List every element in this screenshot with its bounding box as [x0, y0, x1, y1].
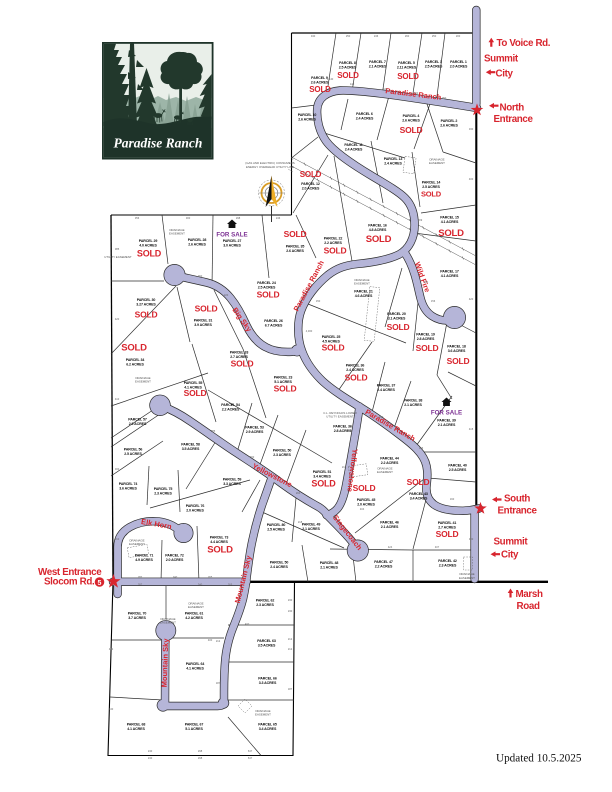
svg-text:PARCEL 50: PARCEL 50: [270, 561, 289, 565]
svg-text:PARCEL 37: PARCEL 37: [377, 384, 396, 388]
svg-text:246: 246: [374, 34, 379, 38]
svg-text:2.1 ACRES: 2.1 ACRES: [404, 403, 422, 407]
svg-text:282: 282: [424, 280, 429, 284]
svg-text:PARCEL 62: PARCEL 62: [256, 599, 275, 603]
svg-text:SOLD: SOLD: [195, 304, 218, 314]
svg-text:400: 400: [245, 622, 250, 626]
svg-text:FOR SALE: FOR SALE: [216, 232, 247, 239]
svg-text:3.0 ACRES: 3.0 ACRES: [223, 243, 241, 247]
svg-text:PARCEL 57: PARCEL 57: [128, 418, 147, 422]
svg-text:FOR SALE: FOR SALE: [431, 410, 462, 417]
svg-text:2.1 ACRES: 2.1 ACRES: [369, 64, 387, 68]
svg-text:SOLD: SOLD: [311, 479, 336, 489]
svg-text:UTILITY EASEMENT: UTILITY EASEMENT: [326, 415, 354, 419]
svg-text:PARCEL 35: PARCEL 35: [286, 245, 305, 249]
svg-text:SOLD: SOLD: [400, 125, 423, 135]
svg-text:2.5 ACRES: 2.5 ACRES: [124, 452, 142, 456]
svg-text:4.2 ACRES: 4.2 ACRES: [185, 616, 203, 620]
svg-text:3.1 ACRES: 3.1 ACRES: [388, 316, 406, 320]
svg-text:PARCEL 41: PARCEL 41: [438, 521, 457, 525]
svg-text:Mountain Sky: Mountain Sky: [160, 638, 171, 688]
svg-text:2.5 ACRES: 2.5 ACRES: [339, 65, 357, 69]
svg-text:SOLD: SOLD: [184, 388, 207, 398]
svg-text:2.4 ACRES: 2.4 ACRES: [377, 388, 395, 392]
svg-text:265: 265: [228, 583, 233, 587]
svg-text:4.4 ACRES: 4.4 ACRES: [210, 540, 228, 544]
svg-text:2.9 ACRES: 2.9 ACRES: [246, 430, 264, 434]
svg-text:PARCEL 21: PARCEL 21: [354, 290, 373, 294]
svg-text:PARCEL 67: PARCEL 67: [185, 723, 204, 727]
svg-text:340: 340: [198, 583, 203, 587]
svg-text:3.27 ACRES: 3.27 ACRES: [136, 302, 156, 306]
svg-text:SOLD: SOLD: [137, 249, 162, 259]
svg-text:4.9 ACRES: 4.9 ACRES: [135, 558, 153, 562]
svg-text:4.0 ACRES: 4.0 ACRES: [139, 243, 157, 247]
svg-text:2.6 ACRES: 2.6 ACRES: [311, 80, 329, 84]
svg-text:Summit: Summit: [484, 54, 519, 65]
svg-text:SOLD: SOLD: [121, 343, 147, 354]
svg-text:SOLD: SOLD: [207, 545, 233, 556]
svg-text:356: 356: [135, 216, 140, 220]
svg-text:EASEMENT: EASEMENT: [354, 282, 370, 286]
svg-text:PARCEL 12: PARCEL 12: [301, 182, 320, 186]
svg-text:PARCEL 8: PARCEL 8: [339, 61, 356, 65]
svg-text:SOLD: SOLD: [135, 310, 158, 320]
svg-text:PARCEL 76: PARCEL 76: [186, 504, 205, 508]
svg-text:400: 400: [469, 177, 474, 181]
svg-text:PARCEL 20: PARCEL 20: [387, 312, 406, 316]
svg-text:PARCEL 6: PARCEL 6: [356, 112, 373, 116]
svg-text:200: 200: [456, 34, 461, 38]
svg-text:EASEMENT: EASEMENT: [169, 232, 185, 236]
svg-text:2.1 ACRES: 2.1 ACRES: [381, 525, 399, 529]
svg-text:Paradise Ranch: Paradise Ranch: [114, 136, 203, 151]
svg-text:420: 420: [115, 317, 120, 321]
svg-text:SOLD: SOLD: [436, 529, 459, 539]
svg-text:Entrance: Entrance: [498, 506, 538, 517]
svg-text:SOLD: SOLD: [438, 228, 464, 239]
svg-text:2.6 ACRES: 2.6 ACRES: [286, 249, 304, 253]
svg-text:EASEMENT: EASEMENT: [377, 470, 393, 474]
svg-text:2.1 ACRES: 2.1 ACRES: [438, 423, 456, 427]
svg-text:PARCEL 18: PARCEL 18: [447, 345, 466, 349]
svg-text:PARCEL 50: PARCEL 50: [273, 449, 292, 453]
svg-text:2.3 ACRES: 2.3 ACRES: [256, 603, 274, 607]
svg-text:SOLD: SOLD: [309, 85, 331, 94]
svg-text:PARCEL 54: PARCEL 54: [221, 403, 240, 407]
svg-text:310: 310: [115, 537, 120, 541]
svg-text:SOLD: SOLD: [337, 71, 359, 80]
svg-text:360: 360: [198, 274, 203, 278]
svg-text:PARCEL 9: PARCEL 9: [311, 76, 328, 80]
svg-text:PARCEL 61: PARCEL 61: [185, 612, 204, 616]
svg-text:298: 298: [198, 749, 203, 753]
svg-text:260: 260: [405, 34, 410, 38]
svg-text:2.0 ACRES: 2.0 ACRES: [302, 186, 320, 190]
svg-text:5: 5: [98, 580, 102, 587]
svg-text:3.4 ACRES: 3.4 ACRES: [410, 496, 428, 500]
svg-text:212: 212: [216, 639, 221, 643]
svg-text:PARCEL 27: PARCEL 27: [223, 239, 242, 243]
svg-text:385: 385: [211, 429, 216, 433]
svg-text:246: 246: [276, 216, 281, 220]
svg-text:4,300: 4,300: [306, 329, 313, 333]
svg-text:PARCEL 14: PARCEL 14: [422, 181, 441, 185]
svg-text:PARCEL 11: PARCEL 11: [344, 143, 362, 147]
svg-text:148: 148: [350, 82, 355, 86]
svg-text:PARCEL 7: PARCEL 7: [369, 60, 386, 64]
svg-text:PARCEL 13: PARCEL 13: [384, 157, 403, 161]
svg-text:212: 212: [288, 637, 293, 641]
svg-text:SOLD: SOLD: [397, 72, 419, 81]
svg-text:PARCEL 33: PARCEL 33: [230, 351, 249, 355]
svg-text:265: 265: [208, 575, 213, 579]
svg-text:2.4 ACRES: 2.4 ACRES: [346, 368, 364, 372]
svg-text:412: 412: [109, 647, 114, 651]
svg-text:300: 300: [115, 467, 120, 471]
svg-text:PARCEL 71: PARCEL 71: [135, 554, 154, 558]
svg-text:South: South: [504, 494, 530, 505]
svg-text:3.5 ACRES: 3.5 ACRES: [182, 447, 200, 451]
svg-text:PARCEL 70: PARCEL 70: [128, 612, 147, 616]
svg-text:PARCEL 24: PARCEL 24: [257, 281, 276, 285]
svg-text:250: 250: [346, 34, 351, 38]
svg-text:2.0 ACRES: 2.0 ACRES: [166, 558, 184, 562]
svg-text:PARCEL 38: PARCEL 38: [404, 399, 423, 403]
svg-text:2.3 ACRES: 2.3 ACRES: [273, 453, 291, 457]
svg-text:5.1 ACRES: 5.1 ACRES: [185, 727, 203, 731]
svg-text:4.1 ACRES: 4.1 ACRES: [186, 666, 204, 670]
svg-text:2.3 ACRES: 2.3 ACRES: [439, 563, 457, 567]
svg-text:PARCEL 58: PARCEL 58: [181, 443, 200, 447]
svg-text:SOLD: SOLD: [284, 229, 307, 239]
svg-text:187: 187: [288, 687, 293, 691]
svg-text:260: 260: [414, 91, 419, 95]
svg-text:6.2 ACRES: 6.2 ACRES: [126, 362, 144, 366]
svg-text:PARCEL 30: PARCEL 30: [137, 298, 156, 302]
svg-text:PARCEL 74: PARCEL 74: [119, 482, 138, 486]
svg-text:218: 218: [298, 520, 303, 524]
svg-text:150: 150: [316, 299, 321, 303]
svg-text:EASEMENT: EASEMENT: [160, 621, 176, 625]
svg-text:PARCEL 65: PARCEL 65: [258, 723, 277, 727]
svg-text:230: 230: [288, 598, 293, 602]
svg-text:240: 240: [148, 756, 153, 760]
svg-text:PARCEL 36: PARCEL 36: [333, 425, 352, 429]
svg-text:250: 250: [442, 96, 447, 100]
svg-text:3.6 ACRES: 3.6 ACRES: [448, 349, 466, 353]
svg-text:220: 220: [224, 293, 229, 297]
svg-text:2.11 ACRES: 2.11 ACRES: [397, 65, 417, 69]
svg-text:SOLD: SOLD: [257, 290, 280, 300]
svg-text:PARCEL 19: PARCEL 19: [416, 333, 435, 337]
svg-text:North: North: [500, 103, 525, 114]
svg-text:SOLD: SOLD: [366, 234, 392, 245]
svg-text:4.6 ACRES: 4.6 ACRES: [355, 294, 373, 298]
svg-text:218: 218: [342, 465, 347, 469]
svg-text:EASEMENT: EASEMENT: [188, 605, 204, 609]
svg-text:PARCEL 55: PARCEL 55: [184, 381, 203, 385]
svg-text:SOLD: SOLD: [387, 322, 410, 332]
svg-text:3.3 ACRES: 3.3 ACRES: [259, 681, 277, 685]
svg-text:400: 400: [208, 638, 213, 642]
svg-text:PARCEL 40: PARCEL 40: [448, 464, 467, 468]
svg-text:4.1 ACRES: 4.1 ACRES: [127, 727, 145, 731]
svg-text:PARCEL 45: PARCEL 45: [357, 498, 376, 502]
svg-text:2.2 ACRES: 2.2 ACRES: [381, 461, 399, 465]
svg-text:SOLD: SOLD: [300, 170, 322, 179]
svg-text:PARCEL 3: PARCEL 3: [425, 60, 442, 64]
svg-text:240: 240: [379, 415, 384, 419]
svg-text:300: 300: [186, 216, 191, 220]
svg-text:PARCEL 25: PARCEL 25: [322, 335, 341, 339]
svg-text:SOLD: SOLD: [447, 356, 470, 366]
svg-text:298: 298: [198, 756, 203, 760]
svg-text:300: 300: [250, 455, 255, 459]
svg-text:PARCEL 36: PARCEL 36: [346, 364, 365, 368]
svg-text:410: 410: [115, 397, 120, 401]
svg-text:2.5 ACRES: 2.5 ACRES: [425, 64, 443, 68]
svg-text:385: 385: [115, 247, 120, 251]
svg-text:EASEMENT: EASEMENT: [135, 380, 151, 384]
svg-text:3.9 ACRES: 3.9 ACRES: [194, 323, 212, 327]
svg-text:PARCEL 53: PARCEL 53: [245, 426, 264, 430]
svg-text:2.5 ACRES: 2.5 ACRES: [422, 185, 440, 189]
svg-text:287: 287: [138, 575, 143, 579]
svg-text:City: City: [501, 550, 519, 561]
svg-text:2.4 ACRES: 2.4 ACRES: [345, 147, 363, 151]
svg-text:6.7 ACRES: 6.7 ACRES: [265, 323, 283, 327]
svg-text:2.1 ACRES: 2.1 ACRES: [320, 565, 338, 569]
svg-text:240: 240: [148, 749, 153, 753]
svg-text:2.2 ACRES: 2.2 ACRES: [222, 407, 240, 411]
svg-text:430: 430: [109, 707, 114, 711]
svg-text:2.6 ACRES: 2.6 ACRES: [440, 123, 458, 127]
svg-text:250: 250: [432, 34, 437, 38]
svg-text:2.0 ACRES: 2.0 ACRES: [186, 508, 204, 512]
svg-text:EASEMENT: EASEMENT: [129, 542, 145, 546]
svg-text:178: 178: [348, 429, 353, 433]
svg-text:PARCEL 26: PARCEL 26: [264, 319, 283, 323]
svg-text:4.1 ACRES: 4.1 ACRES: [441, 220, 459, 224]
svg-text:PARCEL 34: PARCEL 34: [126, 358, 145, 362]
svg-text:PARCEL 31: PARCEL 31: [194, 319, 213, 323]
svg-text:PARCEL 75: PARCEL 75: [154, 487, 173, 491]
svg-text:PARCEL 47: PARCEL 47: [374, 560, 393, 564]
svg-text:SOLD: SOLD: [324, 246, 347, 256]
svg-text:UTILITY EASEMENT: UTILITY EASEMENT: [104, 255, 132, 259]
svg-text:EASEMENT: EASEMENT: [459, 576, 475, 580]
svg-text:2.6 ACRES: 2.6 ACRES: [298, 117, 316, 121]
svg-text:PARCEL 39: PARCEL 39: [437, 419, 456, 423]
svg-text:404: 404: [360, 507, 365, 511]
svg-text:4.1 ACRES: 4.1 ACRES: [441, 274, 459, 278]
svg-text:230: 230: [288, 609, 293, 613]
svg-text:PARCEL 72: PARCEL 72: [165, 554, 184, 558]
svg-text:PARCEL 23: PARCEL 23: [274, 376, 293, 380]
svg-text:PARCEL 5: PARCEL 5: [398, 61, 415, 65]
svg-text:2.2 ACRES: 2.2 ACRES: [324, 241, 342, 245]
svg-text:Road: Road: [517, 601, 540, 612]
svg-text:PARCEL 49: PARCEL 49: [302, 523, 321, 527]
svg-text:PARCEL 4: PARCEL 4: [403, 114, 420, 118]
svg-text:PARCEL 1: PARCEL 1: [450, 60, 467, 64]
svg-text:2.4 ACRES: 2.4 ACRES: [270, 565, 288, 569]
svg-text:PARCEL 29: PARCEL 29: [139, 239, 158, 243]
svg-text:PARCEL 73: PARCEL 73: [210, 536, 229, 540]
svg-text:PARCEL 68: PARCEL 68: [127, 723, 146, 727]
svg-text:PARCEL 22: PARCEL 22: [324, 237, 343, 241]
svg-text:260: 260: [296, 491, 301, 495]
svg-text:PARCEL 28: PARCEL 28: [188, 238, 207, 242]
svg-text:PARCEL 46: PARCEL 46: [380, 521, 399, 525]
svg-text:2.0 ACRES: 2.0 ACRES: [357, 502, 375, 506]
svg-text:240: 240: [383, 87, 388, 91]
svg-text:Updated 10.5.2025: Updated 10.5.2025: [496, 753, 582, 765]
svg-text:340: 340: [173, 575, 178, 579]
svg-text:209: 209: [418, 218, 423, 222]
svg-text:SOLD: SOLD: [345, 373, 368, 383]
svg-text:330: 330: [469, 127, 474, 131]
svg-text:212: 212: [288, 647, 293, 651]
svg-text:SOLD: SOLD: [416, 343, 439, 353]
svg-text:407: 407: [435, 545, 440, 549]
svg-text:2.4 ACRES: 2.4 ACRES: [356, 116, 374, 120]
svg-text:PARCEL 59: PARCEL 59: [223, 478, 242, 482]
svg-text:Slocom Rd.: Slocom Rd.: [44, 577, 95, 588]
svg-text:PARCEL 10: PARCEL 10: [298, 113, 317, 117]
svg-text:287: 287: [138, 583, 143, 587]
svg-text:3.6 ACRES: 3.6 ACRES: [119, 486, 137, 490]
svg-text:2.5 ACRES: 2.5 ACRES: [449, 468, 467, 472]
svg-text:415: 415: [469, 427, 474, 431]
svg-text:Summit: Summit: [494, 537, 529, 548]
svg-text:156: 156: [419, 446, 424, 450]
svg-text:SOLD: SOLD: [274, 384, 297, 394]
svg-text:PARCEL 64: PARCEL 64: [186, 662, 205, 666]
svg-text:To Voice Rd.: To Voice Rd.: [497, 38, 551, 49]
svg-text:Entrance: Entrance: [494, 114, 534, 125]
svg-text:647: 647: [248, 756, 253, 760]
svg-text:PARCEL 44: PARCEL 44: [380, 457, 399, 461]
svg-text:PARCEL 56: PARCEL 56: [124, 448, 143, 452]
svg-text:1,140: 1,140: [327, 77, 334, 81]
svg-text:PARCEL 63: PARCEL 63: [257, 639, 276, 643]
svg-text:PARCEL 51: PARCEL 51: [313, 470, 332, 474]
svg-text:2.8 ACRES: 2.8 ACRES: [417, 337, 435, 341]
svg-text:420: 420: [469, 297, 474, 301]
svg-text:3.4 ACRES: 3.4 ACRES: [259, 727, 277, 731]
svg-text:160: 160: [450, 497, 455, 501]
svg-text:PARCEL 16: PARCEL 16: [368, 224, 387, 228]
svg-text:2.4 ACRES: 2.4 ACRES: [384, 161, 402, 165]
svg-text:PARCEL 80: PARCEL 80: [267, 523, 286, 527]
svg-text:340: 340: [311, 34, 316, 38]
svg-text:4.8 ACRES: 4.8 ACRES: [369, 228, 387, 232]
svg-text:EASEMENT: EASEMENT: [255, 713, 271, 717]
svg-text:300: 300: [469, 537, 474, 541]
svg-text:3.7 ACRES: 3.7 ACRES: [128, 616, 146, 620]
svg-text:Marsh: Marsh: [516, 589, 543, 600]
svg-text:SOLD: SOLD: [322, 343, 345, 353]
svg-text:2.9 ACRES: 2.9 ACRES: [129, 422, 147, 426]
svg-text:2.3 ACRES: 2.3 ACRES: [154, 491, 172, 495]
svg-text:187: 187: [216, 681, 221, 685]
svg-text:PARCEL 66: PARCEL 66: [258, 677, 277, 681]
svg-text:2.6 ACRES: 2.6 ACRES: [188, 242, 206, 246]
svg-text:ENERGY OVERHEAD UTILITY LINE: ENERGY OVERHEAD UTILITY LINE: [246, 165, 294, 169]
svg-text:3.3 ACRES: 3.3 ACRES: [223, 482, 241, 486]
svg-text:City: City: [496, 69, 514, 80]
svg-text:2.6 ACRES: 2.6 ACRES: [402, 118, 420, 122]
svg-text:647: 647: [248, 749, 253, 753]
svg-text:SOLD: SOLD: [231, 359, 254, 369]
svg-text:2.0 ACRES: 2.0 ACRES: [450, 64, 468, 68]
svg-text:PARCEL 43: PARCEL 43: [409, 492, 428, 496]
svg-text:2.2 ACRES: 2.2 ACRES: [375, 564, 393, 568]
svg-text:156: 156: [431, 299, 436, 303]
svg-text:2.1 ACRES: 2.1 ACRES: [302, 527, 320, 531]
svg-text:PARCEL 15: PARCEL 15: [440, 216, 459, 220]
svg-text:424: 424: [388, 545, 393, 549]
svg-text:PARCEL 2: PARCEL 2: [441, 119, 458, 123]
svg-text:298: 298: [236, 216, 241, 220]
svg-text:3.5 ACRES: 3.5 ACRES: [258, 643, 276, 647]
svg-text:PARCEL 42: PARCEL 42: [438, 559, 457, 563]
svg-text:2.5 ACRES: 2.5 ACRES: [267, 527, 285, 531]
svg-text:EASEMENT: EASEMENT: [429, 161, 445, 165]
svg-text:SOLD: SOLD: [421, 190, 442, 199]
svg-text:SOLD: SOLD: [407, 477, 430, 487]
svg-text:PARCEL 17: PARCEL 17: [440, 270, 459, 274]
